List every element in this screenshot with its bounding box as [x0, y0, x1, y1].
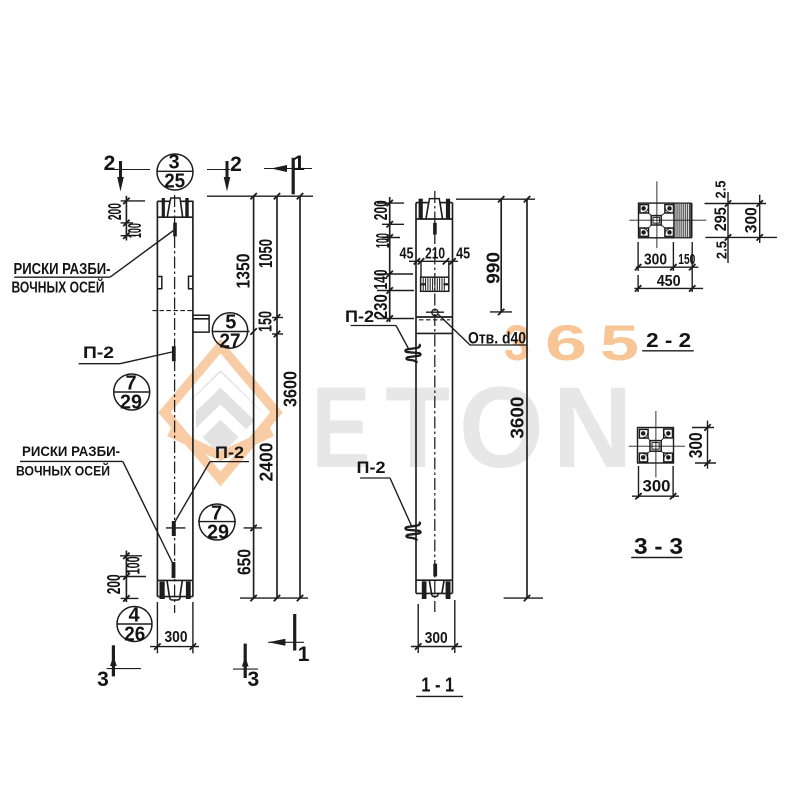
svg-text:300: 300	[686, 432, 706, 458]
svg-text:2400: 2400	[257, 443, 277, 482]
svg-text:2 - 2: 2 - 2	[646, 330, 691, 352]
svg-text:200: 200	[105, 203, 125, 220]
svg-text:1 - 1: 1 - 1	[421, 675, 454, 697]
svg-text:200: 200	[104, 574, 124, 594]
svg-text:3 - 3: 3 - 3	[634, 533, 683, 559]
svg-text:1: 1	[293, 152, 305, 175]
svg-text:ВОЧНЫХ ОСЕЙ: ВОЧНЫХ ОСЕЙ	[12, 278, 105, 297]
svg-text:6: 6	[545, 315, 587, 371]
svg-text:150: 150	[678, 251, 695, 268]
svg-text:300: 300	[165, 629, 188, 646]
svg-text:1050: 1050	[256, 239, 276, 268]
svg-text:ВОЧНЫХ ОСЕЙ: ВОЧНЫХ ОСЕЙ	[16, 462, 110, 479]
svg-text:T: T	[385, 364, 450, 492]
svg-text:450: 450	[657, 273, 681, 290]
svg-text:990: 990	[483, 252, 503, 284]
svg-text:650: 650	[235, 549, 255, 575]
svg-text:45: 45	[456, 245, 470, 262]
svg-text:2.5: 2.5	[713, 181, 730, 199]
svg-text:3600: 3600	[507, 397, 527, 439]
svg-text:200: 200	[371, 200, 391, 220]
svg-text:3: 3	[97, 668, 109, 691]
svg-text:5: 5	[600, 315, 639, 371]
svg-text:100: 100	[373, 233, 393, 248]
svg-text:300: 300	[742, 207, 761, 233]
svg-text:3: 3	[248, 668, 260, 691]
svg-text:П-2: П-2	[357, 458, 386, 477]
svg-text:300: 300	[425, 630, 448, 647]
svg-text:100: 100	[125, 223, 145, 238]
svg-text:П-2: П-2	[345, 307, 374, 326]
svg-text:1350: 1350	[234, 254, 254, 289]
svg-text:O: O	[459, 364, 544, 492]
svg-text:45: 45	[400, 245, 414, 262]
svg-text:29: 29	[120, 392, 142, 414]
svg-text:140: 140	[371, 270, 391, 290]
svg-text:27: 27	[220, 331, 241, 353]
svg-text:П-2: П-2	[83, 343, 114, 362]
svg-text:230: 230	[371, 294, 391, 319]
svg-text:1: 1	[298, 643, 310, 666]
svg-text:150: 150	[255, 311, 275, 332]
svg-text:N: N	[553, 364, 633, 492]
svg-text:25: 25	[164, 171, 185, 193]
svg-text:П-2: П-2	[215, 443, 244, 462]
svg-text:2.5: 2.5	[713, 241, 730, 259]
svg-text:26: 26	[124, 624, 145, 646]
svg-text:210: 210	[425, 245, 445, 262]
svg-text:300: 300	[643, 477, 671, 496]
svg-text:2: 2	[230, 153, 242, 176]
svg-text:29: 29	[207, 522, 229, 544]
svg-text:295: 295	[711, 207, 730, 231]
svg-text:РИСКИ РАЗБИ-: РИСКИ РАЗБИ-	[14, 261, 111, 278]
svg-text:3600: 3600	[280, 371, 300, 407]
svg-text:300: 300	[644, 252, 667, 269]
svg-text:РИСКИ РАЗБИ-: РИСКИ РАЗБИ-	[22, 443, 120, 459]
svg-text:2: 2	[104, 152, 116, 175]
svg-text:100: 100	[124, 556, 144, 574]
